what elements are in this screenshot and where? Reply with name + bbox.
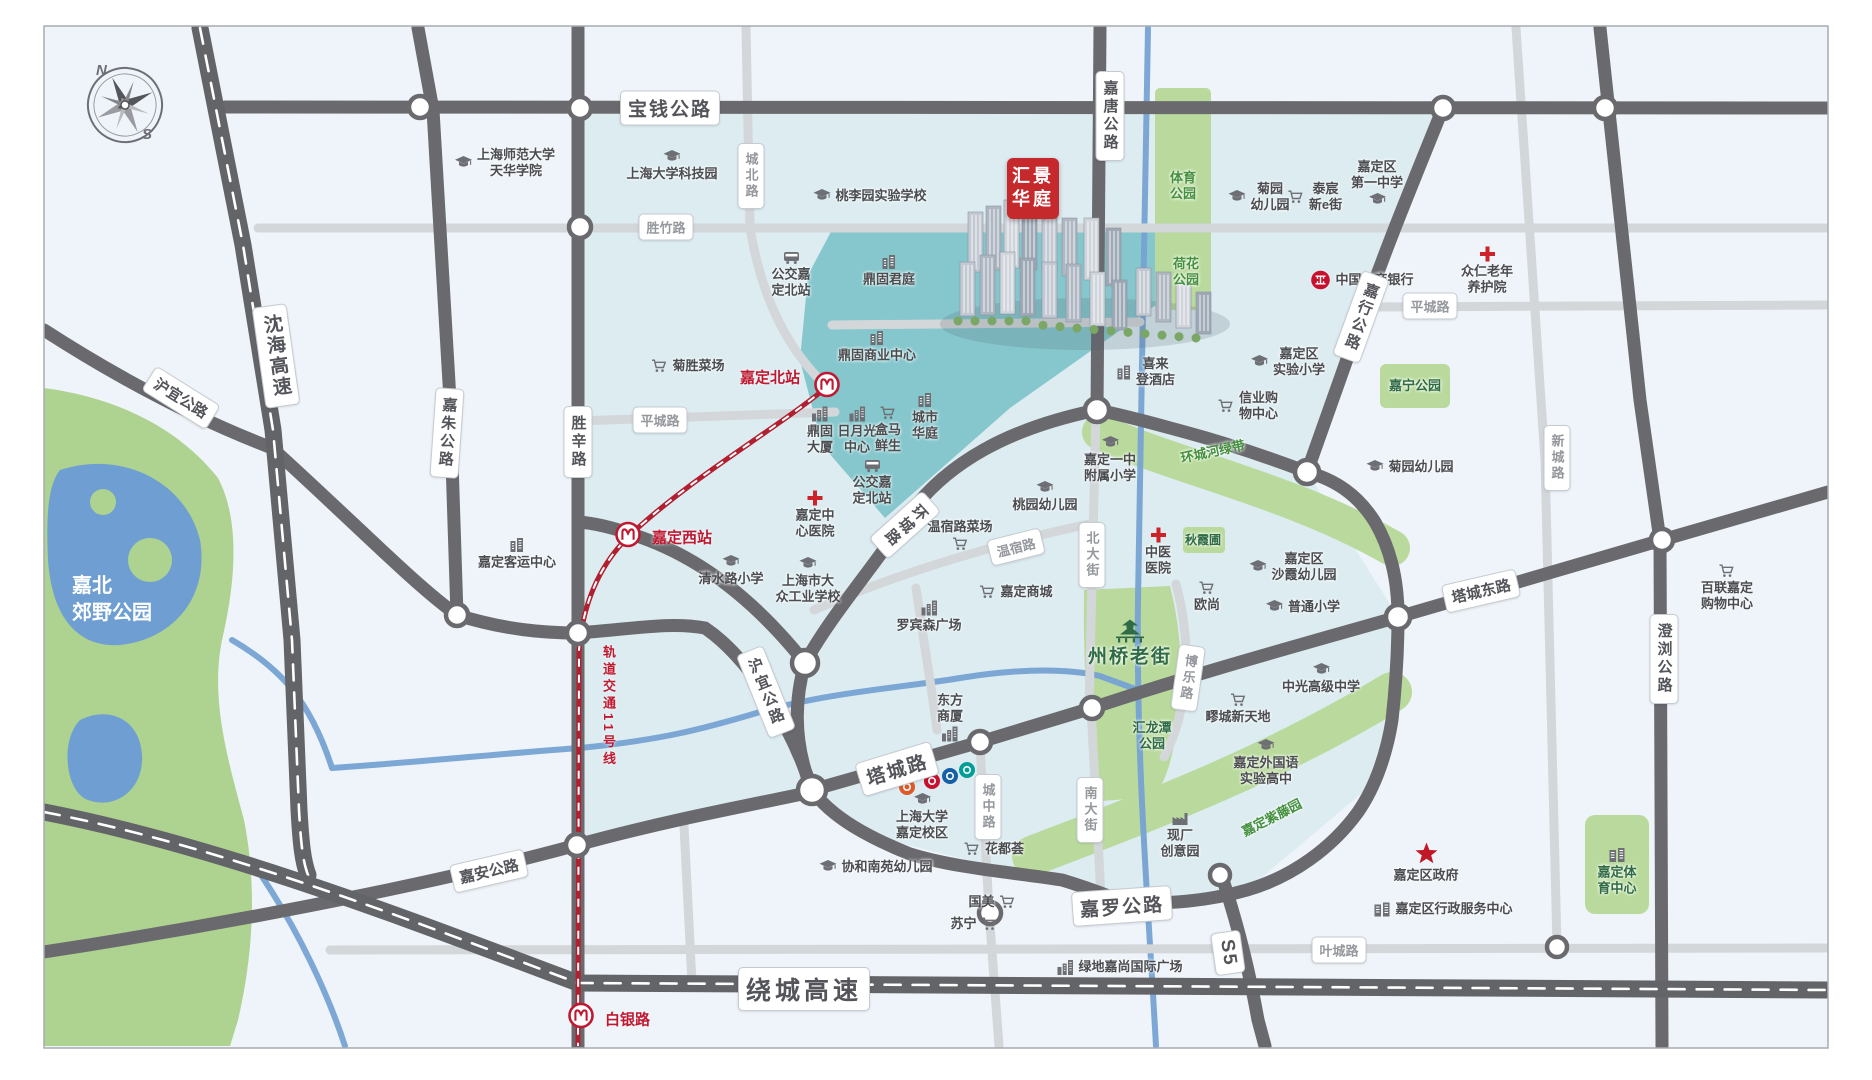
metro-station-label-嘉定北站: 嘉定北站 bbox=[740, 367, 800, 388]
building-icon bbox=[918, 393, 932, 408]
road-label-南大街: 南大街 bbox=[1077, 777, 1104, 843]
poi-text: 城市华庭 bbox=[912, 410, 938, 442]
poi-欧尚: 欧尚 bbox=[1194, 581, 1220, 613]
road-label-text: 博乐路 bbox=[1177, 653, 1199, 703]
road-label-text: 嘉唐公路 bbox=[1102, 80, 1119, 152]
poi-text: 清水路小学 bbox=[698, 571, 763, 587]
park-label-嘉定紫藤园: 嘉定紫藤园 bbox=[1239, 796, 1304, 840]
road-label-text: 沈海高速 bbox=[260, 313, 292, 399]
poi-text: 日月光中心 bbox=[837, 424, 876, 456]
poi-text: 上海师范大学天华学院 bbox=[477, 147, 555, 179]
poi-上海大学科技园: 上海大学科技园 bbox=[626, 150, 717, 182]
poi-百联嘉定购物中心: 百联嘉定购物中心 bbox=[1701, 564, 1753, 612]
poi-text: 嘉定区实验小学 bbox=[1273, 346, 1325, 378]
compass-south-label: S bbox=[142, 126, 152, 143]
road-label-嘉唐公路: 嘉唐公路 bbox=[1096, 71, 1125, 161]
metro-station-icon bbox=[814, 371, 841, 403]
poi-text: 现厂创意园 bbox=[1160, 828, 1199, 860]
metro-line-11-label: 轨道交通11号线 bbox=[599, 645, 618, 769]
poi-text: 欧尚 bbox=[1194, 597, 1220, 613]
road-label-S5: S5 bbox=[1210, 929, 1246, 976]
park-label-嘉北郊野公园: 嘉北郊野公园 bbox=[72, 573, 152, 627]
poi-text: 菊胜菜场 bbox=[672, 358, 724, 374]
bank-logo-4 bbox=[959, 762, 976, 779]
cart-icon bbox=[651, 359, 667, 373]
park-label-汇龙潭公园: 汇龙潭公园 bbox=[1132, 720, 1171, 752]
poi-text: 温宿路菜场 bbox=[927, 519, 992, 535]
road-label-text: 叶城路 bbox=[1319, 944, 1358, 959]
poi-桃李园实验学校: 桃李园实验学校 bbox=[813, 188, 926, 204]
poi-text: 嘉定客运中心 bbox=[478, 555, 556, 571]
poi-text: 嘉定一中附属小学 bbox=[1084, 452, 1136, 484]
road-label-text: 沪宜公路 bbox=[745, 655, 788, 728]
building-icon bbox=[1117, 365, 1131, 380]
park-label-text: 嘉宁公园 bbox=[1389, 378, 1441, 394]
road-label-text: 平城路 bbox=[1410, 300, 1449, 315]
road-label-text: 环城路 bbox=[879, 501, 931, 550]
poi-罗宾森广场: 罗宾森广场 bbox=[896, 601, 961, 634]
school-icon bbox=[799, 557, 816, 571]
poi-text: 嘉定区第一中学 bbox=[1351, 159, 1403, 191]
poi-泰宸新e街: 泰宸新e街 bbox=[1288, 181, 1342, 213]
school-icon bbox=[813, 189, 830, 203]
cart-icon bbox=[1230, 693, 1246, 707]
pagoda-icon bbox=[1113, 620, 1147, 644]
road-label-胜竹路: 胜竹路 bbox=[638, 214, 693, 241]
hospital-cross-icon bbox=[1479, 247, 1494, 262]
road-label-text: 澄浏公路 bbox=[1656, 623, 1673, 695]
poi-桃园幼儿园: 桃园幼儿园 bbox=[1012, 481, 1077, 513]
poi-text: 嘉定中心医院 bbox=[795, 508, 834, 540]
poi-text: 公交嘉定北站 bbox=[852, 475, 891, 507]
poi-嘉定区政府: 嘉定区政府 bbox=[1393, 843, 1458, 884]
poi-东方商厦: 东方商厦 bbox=[937, 693, 963, 742]
park-label-环城河绿带: 环城河绿带 bbox=[1180, 437, 1247, 466]
poi-菊园幼儿园: 菊园幼儿园 bbox=[1228, 181, 1289, 213]
compass-north-label: N bbox=[96, 62, 107, 79]
road-label-嘉朱公路: 嘉朱公路 bbox=[429, 387, 464, 479]
school-icon bbox=[1368, 193, 1385, 207]
star-icon bbox=[1414, 843, 1438, 866]
gov-building-icon bbox=[1373, 902, 1390, 917]
poi-信业购物中心: 信业购物中心 bbox=[1218, 390, 1278, 422]
road-label-胜辛路: 胜辛路 bbox=[564, 406, 593, 478]
gov-building-icon bbox=[1608, 848, 1625, 863]
poi-嘉定区沙霞幼儿园: 嘉定区沙霞幼儿园 bbox=[1249, 551, 1336, 583]
labels-layer: N S 汇景 华庭 轨道交通11号线 宝钱公路嘉唐公路沈海高速沪宜公路嘉朱公路胜… bbox=[0, 0, 1872, 1080]
poi-国美: 国美 bbox=[968, 894, 1015, 910]
poi-text: 花都荟 bbox=[985, 841, 1024, 857]
poi-text: 盒马鲜生 bbox=[875, 422, 901, 454]
poi-疁城新天地: 疁城新天地 bbox=[1205, 693, 1270, 725]
metro-station-icon bbox=[615, 521, 642, 553]
park-label-荷花公园: 荷花公园 bbox=[1173, 256, 1199, 288]
metro-station-icon bbox=[568, 1002, 595, 1034]
poi-公交嘉定北站: 公交嘉定北站 bbox=[852, 460, 891, 507]
poi-普通小学: 普通小学 bbox=[1266, 599, 1340, 615]
school-icon bbox=[819, 860, 836, 874]
poi-嘉定外国语实验高中: 嘉定外国语实验高中 bbox=[1233, 739, 1298, 787]
bank-logo-icon bbox=[942, 768, 959, 785]
road-label-text: 塔城东路 bbox=[1450, 577, 1512, 607]
road-label-text: 塔城路 bbox=[864, 752, 930, 791]
poi-text: 嘉定区政府 bbox=[1393, 868, 1458, 884]
cart-icon bbox=[964, 842, 980, 856]
road-label-text: 宝钱公路 bbox=[628, 100, 712, 121]
hospital-cross-icon bbox=[807, 491, 822, 506]
poi-花都荟: 花都荟 bbox=[964, 841, 1024, 857]
cart-icon bbox=[952, 537, 968, 551]
poi-菊园幼儿园: 菊园幼儿园 bbox=[1366, 459, 1453, 475]
road-label-平城路: 平城路 bbox=[632, 407, 687, 434]
road-label-text: 嘉安公路 bbox=[458, 857, 520, 887]
poi-鼎固大厦: 鼎固大厦 bbox=[807, 407, 833, 456]
school-icon bbox=[1249, 560, 1266, 574]
project-name-line: 华庭 bbox=[1012, 189, 1054, 209]
metro-station-label-嘉定西站: 嘉定西站 bbox=[652, 527, 712, 548]
school-icon bbox=[1228, 190, 1245, 204]
poi-现厂创意园: 现厂创意园 bbox=[1160, 813, 1199, 860]
road-label-text: 沪宜公路 bbox=[151, 376, 211, 422]
poi-协和南苑幼儿园: 协和南苑幼儿园 bbox=[819, 859, 932, 875]
poi-嘉定客运中心: 嘉定客运中心 bbox=[478, 538, 556, 571]
poi-text: 协和南苑幼儿园 bbox=[841, 859, 932, 875]
park-label-体育公园: 体育公园 bbox=[1170, 170, 1196, 202]
poi-text: 嘉定区沙霞幼儿园 bbox=[1271, 551, 1336, 583]
poi-text: 东方商厦 bbox=[937, 693, 963, 725]
road-label-博乐路: 博乐路 bbox=[1170, 643, 1206, 712]
park-label-嘉宁公园: 嘉宁公园 bbox=[1389, 378, 1441, 394]
school-icon bbox=[455, 156, 472, 170]
road-label-text: S5 bbox=[1216, 938, 1241, 968]
poi-text: 中光高级中学 bbox=[1282, 679, 1360, 695]
poi-text: 众仁老年养护院 bbox=[1461, 264, 1513, 296]
poi-text: 上海大学科技园 bbox=[626, 166, 717, 182]
poi-text: 鼎固商业中心 bbox=[838, 348, 916, 364]
towers-icon bbox=[849, 407, 865, 422]
poi-text: 罗宾森广场 bbox=[896, 618, 961, 634]
poi-嘉定商城: 嘉定商城 bbox=[979, 584, 1052, 600]
park-label-嘉定体育中心: 嘉定体育中心 bbox=[1597, 848, 1636, 897]
road-label-text: 平城路 bbox=[640, 414, 679, 429]
building-icon bbox=[510, 538, 524, 553]
road-label-text: 嘉朱公路 bbox=[436, 396, 458, 469]
school-icon bbox=[1251, 355, 1268, 369]
poi-嘉定一中附属小学: 嘉定一中附属小学 bbox=[1084, 436, 1136, 484]
school-icon bbox=[1257, 739, 1274, 753]
road-label-北大街: 北大街 bbox=[1079, 522, 1106, 588]
poi-清水路小学: 清水路小学 bbox=[698, 555, 763, 587]
towers-icon bbox=[921, 601, 937, 616]
cart-icon bbox=[1199, 581, 1215, 595]
project-badge-huijing-huating: 汇景 华庭 bbox=[1007, 158, 1059, 219]
poi-嘉定区第一中学: 嘉定区第一中学 bbox=[1351, 159, 1403, 207]
poi-中光高级中学: 中光高级中学 bbox=[1282, 663, 1360, 695]
poi-text: 嘉定外国语实验高中 bbox=[1233, 755, 1298, 787]
school-icon bbox=[1101, 436, 1118, 450]
poi-text: 百联嘉定购物中心 bbox=[1701, 580, 1753, 612]
project-name-line: 汇景 bbox=[1012, 166, 1054, 186]
poi-text: 菊园幼儿园 bbox=[1388, 459, 1453, 475]
road-label-沈海高速: 沈海高速 bbox=[252, 303, 301, 409]
poi-嘉定中心医院: 嘉定中心医院 bbox=[795, 491, 834, 540]
poi-text: 泰宸新e街 bbox=[1309, 181, 1342, 213]
poi-text: 嘉定商城 bbox=[1000, 584, 1052, 600]
poi-苏宁: 苏宁 bbox=[950, 916, 997, 932]
poi-上海师范大学天华学院: 上海师范大学天华学院 bbox=[455, 147, 555, 179]
poi-text: 国美 bbox=[968, 894, 994, 910]
towers-icon bbox=[1057, 960, 1073, 975]
building-icon bbox=[882, 255, 896, 270]
bus-icon bbox=[783, 252, 799, 265]
cart-icon bbox=[982, 917, 998, 931]
poi-鼎固君庭: 鼎固君庭 bbox=[863, 255, 915, 288]
road-label-宝钱公路: 宝钱公路 bbox=[620, 91, 720, 126]
poi-text: 疁城新天地 bbox=[1205, 709, 1270, 725]
poi-text: 上海市大众工业学校 bbox=[775, 573, 840, 605]
poi-text: 绿地嘉尚国际广场 bbox=[1078, 959, 1182, 975]
road-label-text: 城中路 bbox=[981, 783, 996, 831]
poi-text: 鼎固大厦 bbox=[807, 424, 833, 456]
poi-text: 公交嘉定北站 bbox=[771, 267, 810, 299]
school-icon bbox=[1266, 600, 1283, 614]
towers-icon bbox=[812, 407, 828, 422]
poi-盒马鲜生: 盒马鲜生 bbox=[875, 406, 901, 454]
road-label-text: 南大街 bbox=[1083, 786, 1098, 834]
poi-嘉定区行政服务中心: 嘉定区行政服务中心 bbox=[1373, 901, 1512, 917]
school-icon bbox=[663, 150, 680, 164]
bank-logo-3 bbox=[942, 768, 959, 785]
park-label-text: 环城河绿带 bbox=[1180, 437, 1247, 466]
park-label-text: 秋霞圃 bbox=[1185, 532, 1221, 548]
road-label-text: 绕城高速 bbox=[746, 977, 862, 1005]
road-label-嘉安公路: 嘉安公路 bbox=[449, 848, 530, 893]
road-label-叶城路: 叶城路 bbox=[1311, 937, 1366, 964]
poi-绿地嘉尚国际广场: 绿地嘉尚国际广场 bbox=[1057, 959, 1182, 975]
park-label-text: 荷花公园 bbox=[1173, 256, 1199, 288]
poi-text: 喜来登酒店 bbox=[1136, 356, 1175, 388]
poi-text: 普通小学 bbox=[1288, 599, 1340, 615]
poi-喜来登酒店: 喜来登酒店 bbox=[1117, 356, 1175, 388]
cart-icon bbox=[1288, 190, 1304, 204]
factory-icon bbox=[1171, 813, 1188, 826]
poi-鼎固商业中心: 鼎固商业中心 bbox=[838, 331, 916, 364]
road-label-新城路: 新城路 bbox=[1544, 425, 1571, 491]
poi-温宿路菜场: 温宿路菜场 bbox=[927, 519, 992, 551]
road-label-text: 温宿路 bbox=[995, 536, 1036, 560]
poi-text: 鼎固君庭 bbox=[863, 272, 915, 288]
poi-上海市大众工业学校: 上海市大众工业学校 bbox=[775, 557, 840, 605]
poi-上海大学嘉定校区: 上海大学嘉定校区 bbox=[896, 793, 948, 841]
poi-text: 嘉定区行政服务中心 bbox=[1395, 901, 1512, 917]
icbc-logo bbox=[1310, 270, 1330, 290]
road-label-沪宜公路: 沪宜公路 bbox=[736, 645, 797, 739]
road-label-塔城东路: 塔城东路 bbox=[1441, 568, 1522, 613]
poi-text: 桃园幼儿园 bbox=[1012, 497, 1077, 513]
road-label-沪宜公路: 沪宜公路 bbox=[141, 366, 221, 431]
park-label-text: 嘉北郊野公园 bbox=[72, 573, 152, 627]
road-label-温宿路: 温宿路 bbox=[986, 527, 1046, 567]
school-icon bbox=[913, 793, 930, 807]
road-label-text: 城北路 bbox=[744, 152, 759, 200]
bank-logo-icon bbox=[959, 762, 976, 779]
poi-日月光中心: 日月光中心 bbox=[837, 407, 876, 456]
cart-icon bbox=[880, 406, 896, 420]
road-label-text: 嘉罗公路 bbox=[1080, 895, 1165, 922]
bus-icon bbox=[864, 460, 880, 473]
cart-icon bbox=[1218, 399, 1234, 413]
school-icon bbox=[1366, 460, 1383, 474]
park-label-text: 体育公园 bbox=[1170, 170, 1196, 202]
poi-text: 苏宁 bbox=[950, 916, 976, 932]
road-label-绕城高速: 绕城高速 bbox=[738, 967, 870, 1011]
road-label-text: 新城路 bbox=[1550, 434, 1565, 482]
poi-嘉定区实验小学: 嘉定区实验小学 bbox=[1251, 346, 1325, 378]
poi-text: 中医医院 bbox=[1145, 545, 1171, 577]
cart-icon bbox=[979, 585, 995, 599]
poi-text: 桃李园实验学校 bbox=[835, 188, 926, 204]
poi-text: 菊园幼儿园 bbox=[1250, 181, 1289, 213]
park-label-秋霞圃: 秋霞圃 bbox=[1185, 532, 1221, 548]
road-label-城中路: 城中路 bbox=[975, 774, 1002, 840]
park-label-州桥老街: 州桥老街 bbox=[1088, 620, 1172, 669]
park-label-text: 嘉定紫藤园 bbox=[1239, 796, 1304, 840]
cart-icon bbox=[1000, 895, 1016, 909]
road-label-text: 胜竹路 bbox=[646, 221, 685, 236]
road-label-text: 北大街 bbox=[1085, 531, 1100, 579]
poi-众仁老年养护院: 众仁老年养护院 bbox=[1461, 247, 1513, 296]
park-label-text: 汇龙潭公园 bbox=[1132, 720, 1171, 752]
road-label-text: 胜辛路 bbox=[570, 415, 587, 469]
poi-城市华庭: 城市华庭 bbox=[912, 393, 938, 442]
park-label-text: 嘉定体育中心 bbox=[1597, 865, 1636, 897]
poi-公交嘉定北站: 公交嘉定北站 bbox=[771, 252, 810, 299]
school-icon bbox=[1312, 663, 1329, 677]
road-label-平城路: 平城路 bbox=[1402, 293, 1457, 320]
cart-icon bbox=[1719, 564, 1735, 578]
school-icon bbox=[722, 555, 739, 569]
poi-text: 信业购物中心 bbox=[1239, 390, 1278, 422]
road-label-城北路: 城北路 bbox=[738, 143, 765, 209]
poi-text: 上海大学嘉定校区 bbox=[896, 809, 948, 841]
location-map: N S 汇景 华庭 轨道交通11号线 宝钱公路嘉唐公路沈海高速沪宜公路嘉朱公路胜… bbox=[0, 0, 1872, 1080]
poi-中医医院: 中医医院 bbox=[1145, 528, 1171, 577]
poi-菊胜菜场: 菊胜菜场 bbox=[651, 358, 724, 374]
road-label-嘉罗公路: 嘉罗公路 bbox=[1071, 885, 1173, 927]
towers-icon bbox=[942, 727, 958, 742]
metro-station-label-白银路: 白银路 bbox=[605, 1009, 650, 1030]
school-icon bbox=[1036, 481, 1053, 495]
road-label-text: 嘉行公路 bbox=[1341, 280, 1382, 353]
road-label-澄浏公路: 澄浏公路 bbox=[1650, 614, 1679, 704]
hospital-cross-icon bbox=[1150, 528, 1165, 543]
building-icon bbox=[870, 331, 884, 346]
park-label-text: 州桥老街 bbox=[1088, 646, 1172, 669]
